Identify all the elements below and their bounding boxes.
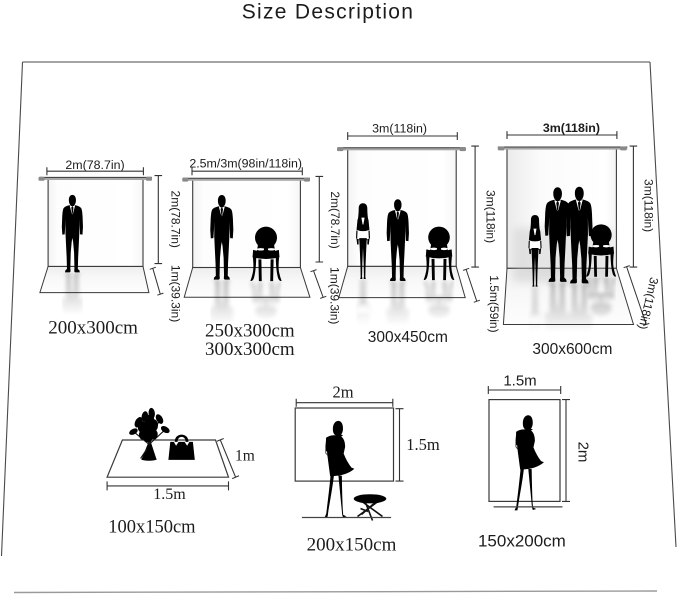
svg-text:200x150cm: 200x150cm (307, 535, 397, 556)
svg-text:2m(78.7in): 2m(78.7in) (168, 191, 182, 248)
svg-text:1.5m: 1.5m (406, 435, 440, 454)
svg-text:300x600cm: 300x600cm (532, 341, 612, 358)
svg-text:2m: 2m (332, 382, 353, 401)
svg-text:1m(39.3in): 1m(39.3in) (168, 265, 182, 322)
svg-text:2m(78.7in): 2m(78.7in) (328, 191, 342, 248)
svg-text:2.5m/3m(98in/118in): 2.5m/3m(98in/118in) (189, 157, 302, 171)
svg-text:3m(118in): 3m(118in) (484, 190, 498, 243)
svg-text:1m: 1m (235, 448, 255, 465)
svg-text:1.5m(59in): 1.5m(59in) (487, 275, 501, 332)
svg-text:1.5m: 1.5m (503, 372, 536, 389)
svg-text:2m(78.7in): 2m(78.7in) (65, 158, 124, 172)
svg-text:200x300cm: 200x300cm (48, 318, 138, 339)
svg-text:300x300cm: 300x300cm (205, 339, 295, 360)
svg-text:100x150cm: 100x150cm (108, 518, 196, 538)
svg-text:3m(118in): 3m(118in) (543, 121, 600, 135)
svg-text:2m: 2m (575, 442, 592, 463)
svg-text:3m(118in): 3m(118in) (642, 179, 656, 232)
svg-text:Size Description: Size Description (242, 1, 415, 24)
svg-text:150x200cm: 150x200cm (478, 532, 566, 551)
svg-text:300x450cm: 300x450cm (368, 329, 448, 346)
svg-text:1.5m: 1.5m (153, 486, 186, 503)
svg-text:3m(118in): 3m(118in) (372, 121, 427, 135)
